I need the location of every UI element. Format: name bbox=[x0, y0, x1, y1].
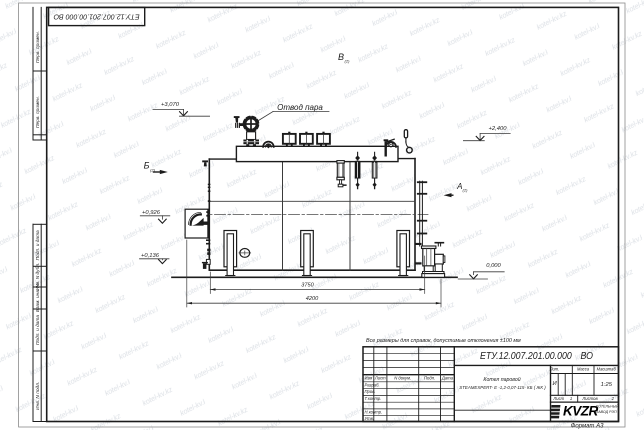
svg-text:Отвод пара: Отвод пара bbox=[277, 103, 323, 112]
svg-text:+0,926: +0,926 bbox=[142, 210, 161, 216]
svg-text:Перв. примен.: Перв. примен. bbox=[35, 96, 41, 128]
svg-text:(2): (2) bbox=[345, 59, 351, 64]
svg-text:Дата: Дата bbox=[441, 375, 454, 380]
svg-text:Инв. N подл.: Инв. N подл. bbox=[35, 382, 41, 410]
svg-text:Формат А3: Формат А3 bbox=[571, 424, 604, 430]
svg-text:Лит.: Лит. bbox=[549, 367, 560, 372]
svg-text:Котел паровой: Котел паровой bbox=[483, 376, 520, 383]
svg-text:КОТЕЛЬНЫЙ: КОТЕЛЬНЫЙ bbox=[596, 405, 619, 409]
svg-text:2: 2 bbox=[611, 396, 615, 401]
svg-text:+2,400: +2,400 bbox=[489, 126, 508, 132]
svg-text:ЗАВОД РЭП: ЗАВОД РЭП bbox=[596, 410, 617, 414]
svg-text:3750: 3750 bbox=[301, 282, 314, 288]
svg-text:Перв. примен.: Перв. примен. bbox=[35, 31, 41, 63]
svg-text:Лист: Лист bbox=[552, 396, 564, 401]
svg-text:Т.контр.: Т.контр. bbox=[365, 396, 382, 401]
svg-text:А: А bbox=[456, 182, 462, 191]
svg-text:Подп. и дата: Подп. и дата bbox=[35, 315, 41, 345]
svg-text:ЕТУ.12.007.201.00.000 ВО: ЕТУ.12.007.201.00.000 ВО bbox=[480, 351, 593, 362]
svg-text:В: В bbox=[338, 52, 344, 62]
svg-text:Масса: Масса bbox=[577, 367, 590, 372]
svg-text:N докум.: N докум. bbox=[394, 375, 411, 380]
svg-text:Разраб.: Разраб. bbox=[365, 382, 380, 387]
svg-text:0,000: 0,000 bbox=[486, 263, 501, 269]
svg-text:Масштаб: Масштаб bbox=[597, 367, 617, 372]
svg-text:Взам. инв. N: Взам. инв. N bbox=[35, 284, 41, 312]
svg-text:Лист: Лист bbox=[374, 375, 386, 380]
svg-text:1: 1 bbox=[570, 396, 572, 401]
svg-text:(2): (2) bbox=[463, 187, 469, 192]
svg-text:Все размеры для справок, допус: Все размеры для справок, допустимые откл… bbox=[366, 338, 521, 344]
svg-text:Утв.: Утв. bbox=[365, 416, 375, 421]
svg-text:STEAMEXPERT- Е -1,2-0,07-115-: STEAMEXPERT- Е -1,2-0,07-115- КБ ( ЖК ) bbox=[459, 385, 546, 390]
svg-text:И: И bbox=[553, 381, 558, 387]
svg-text:4200: 4200 bbox=[306, 296, 319, 302]
svg-text:KVZR: KVZR bbox=[563, 404, 599, 419]
svg-text:Пров.: Пров. bbox=[365, 389, 376, 394]
svg-text:Изм: Изм bbox=[365, 375, 373, 380]
svg-text:+3,070: +3,070 bbox=[161, 102, 180, 108]
svg-text:Листов: Листов bbox=[581, 396, 598, 401]
svg-text:Подп. и дата: Подп. и дата bbox=[35, 230, 41, 260]
svg-text:Подп.: Подп. bbox=[424, 375, 435, 380]
svg-text:1:25: 1:25 bbox=[601, 382, 613, 388]
svg-text:Н.контр.: Н.контр. bbox=[365, 410, 383, 415]
svg-text:ЕТУ.12.007.201.00.000 ВО: ЕТУ.12.007.201.00.000 ВО bbox=[53, 13, 139, 22]
svg-text:Б: Б bbox=[144, 161, 150, 171]
svg-text:+0,136: +0,136 bbox=[141, 253, 160, 259]
